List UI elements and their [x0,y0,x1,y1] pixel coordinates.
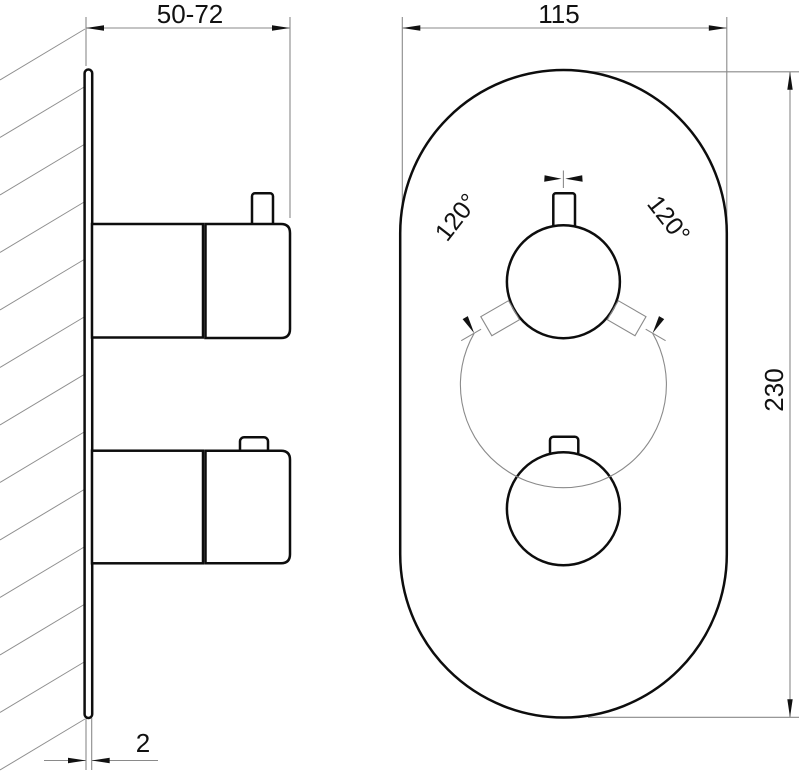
dimension-depth [86,17,290,218]
arrowhead [68,758,86,763]
dim-plate-thickness-label: 2 [136,728,150,758]
arrowhead [787,72,792,90]
dim-plate-height-label: 230 [759,368,789,411]
lower-knob-circle [507,452,620,565]
dim-plate-width-label: 115 [538,0,579,29]
upper-knob-circle [507,225,620,338]
arrowhead [402,25,420,30]
upper-knob-cap-side [206,224,291,338]
face-plate-front [400,70,727,718]
mixer-installation-drawing: 50-72 115 230 2 120° 120° [0,0,800,771]
lower-valve-body-side [92,451,203,564]
lower-knob-cap-side [206,451,291,564]
arrowhead [709,25,727,30]
dim-depth-label: 50-72 [157,0,224,29]
lower-knob-side [92,437,290,563]
technical-drawing-page: 50-72 115 230 2 120° 120° [0,0,800,771]
upper-knob-side [92,193,290,338]
wall-hatch-pattern [0,29,85,770]
arrowhead [92,758,110,763]
mounting-plate-side [85,70,93,719]
arrowhead [272,25,290,30]
arrowhead [86,25,104,30]
arrowhead [787,699,792,717]
upper-valve-body-side [92,224,203,338]
